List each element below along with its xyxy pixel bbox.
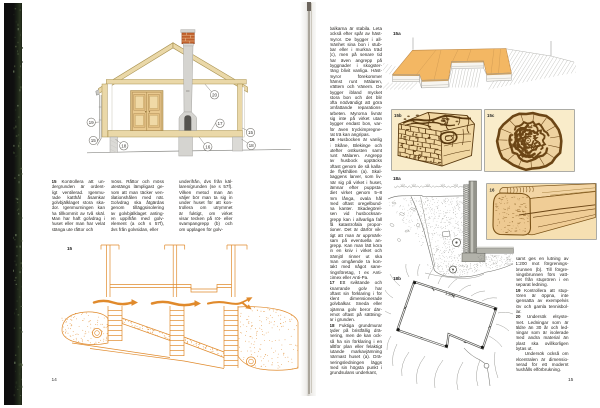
svg-text:16: 16 <box>205 144 211 149</box>
svg-text:20: 20 <box>212 92 218 97</box>
svg-text:19: 19 <box>89 120 95 125</box>
svg-text:16: 16 <box>490 188 495 193</box>
svg-text:18: 18 <box>249 143 255 148</box>
svg-text:15: 15 <box>91 138 97 143</box>
svg-text:15b: 15b <box>394 113 402 118</box>
svg-text:18: 18 <box>121 143 127 148</box>
svg-text:17: 17 <box>217 121 223 126</box>
svg-text:15: 15 <box>248 130 254 135</box>
svg-text:15c: 15c <box>487 113 495 118</box>
